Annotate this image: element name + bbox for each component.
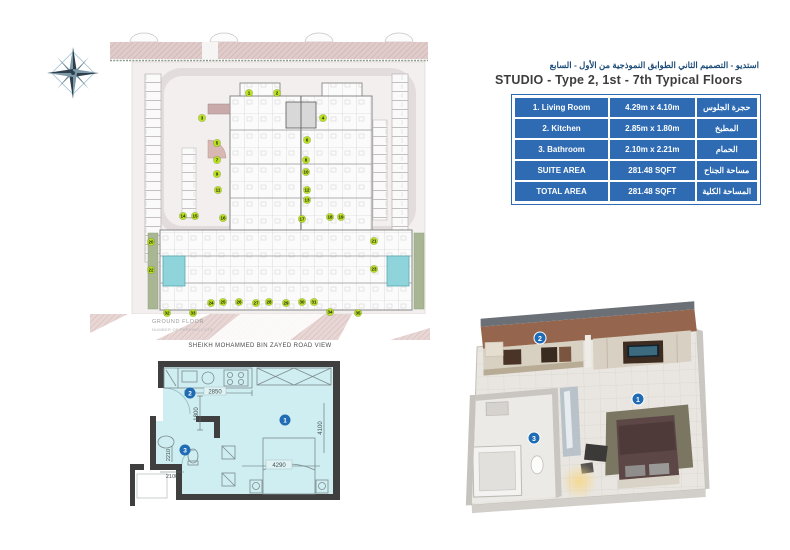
dim-living-depth: 4100 (318, 421, 324, 435)
unit-number-marker: 15 (192, 213, 199, 220)
unit-number-marker: 32 (164, 310, 171, 317)
marker-living: 1 (283, 418, 287, 425)
unit-3d-render: 1 2 3 (458, 295, 722, 517)
top-road (110, 42, 428, 59)
table-row: 1. Living Room 4.29m x 4.10m حجرة الجلوس (515, 98, 757, 117)
unit-number-marker: 3 (199, 115, 206, 122)
marker-living-3d: 1 (636, 397, 640, 404)
marker-kitchen-3d: 2 (538, 336, 542, 343)
unit-number-marker: 8 (303, 157, 310, 164)
table-row: SUITE AREA 281.48 SQFT مساحة الجناح (515, 161, 757, 180)
unit-number-marker: 13 (304, 197, 311, 204)
render-body (462, 301, 709, 514)
spec-table-wrapper: 1. Living Room 4.29m x 4.10m حجرة الجلوس… (511, 94, 761, 205)
room-size-cell: 2.10m x 2.21m (610, 140, 694, 159)
street-canopies (130, 33, 413, 42)
spec-table: 1. Living Room 4.29m x 4.10m حجرة الجلوس… (513, 96, 759, 203)
toilet-3d (531, 456, 543, 474)
unit-number-marker: 7 (214, 157, 221, 164)
unit-number-marker: 2 (274, 90, 281, 97)
bed-3d (616, 415, 679, 489)
unit-number-marker: 26 (236, 299, 243, 306)
room-size-cell: 4.29m x 4.10m (610, 98, 694, 117)
room-arabic-cell: المطبخ (697, 119, 757, 138)
dim-kitchen-width: 2850 (208, 390, 222, 396)
dim-living-width: 4290 (272, 463, 286, 469)
unit-number-marker: 9 (214, 171, 221, 178)
brochure-page: GROUND FLOOR NUMBER OF PARKING LOTS SHEI… (0, 0, 790, 550)
landscape-right (414, 233, 424, 309)
total-area-cell: TOTAL AREA (515, 182, 608, 201)
parking-left-inner (182, 148, 196, 218)
unit-number-marker: 34 (327, 309, 334, 316)
unit-number-marker: 23 (371, 266, 378, 273)
unit-number-marker: 18 (327, 214, 334, 221)
unit-number-marker: 35 (355, 310, 362, 317)
suite-area-value: 281.48 SQFT (610, 161, 694, 180)
unit-number-marker: 28 (266, 299, 273, 306)
unit-number-marker: 19 (338, 214, 345, 221)
table-row: TOTAL AREA 281.48 SQFT المساحة الكلية (515, 182, 757, 201)
building-upper-wing (208, 83, 372, 230)
unit-number-marker: 27 (253, 300, 260, 307)
total-area-arabic: المساحة الكلية (697, 182, 757, 201)
entrance-canopy (208, 104, 230, 114)
unit-number-marker: 5 (214, 140, 221, 147)
panel-title-english: STUDIO - Type 2, 1st - 7th Typical Floor… (495, 73, 761, 87)
dim-kitchen-depth: 1800 (194, 407, 200, 421)
room-name-cell: 3. Bathroom (515, 140, 608, 159)
unit-number-marker: 17 (299, 216, 306, 223)
unit-number-marker: 22 (148, 267, 155, 274)
unit-number-marker: 31 (311, 299, 318, 306)
suite-area-arabic: مساحة الجناح (697, 161, 757, 180)
room-arabic-cell: الحمام (697, 140, 757, 159)
unit-number-marker: 12 (304, 187, 311, 194)
marker-bath-3d: 3 (532, 436, 536, 443)
bottom-road (90, 314, 430, 340)
unit-number-marker: 25 (220, 299, 227, 306)
marker-bath: 3 (183, 448, 187, 455)
unit-number-marker: 30 (299, 299, 306, 306)
bathroom-3d (470, 388, 562, 503)
unit-number-marker: 24 (208, 300, 215, 307)
unit-number-marker: 10 (303, 169, 310, 176)
unit-info-panel: استديو - التصميم الثاني الطوابق النموذجي… (495, 60, 761, 205)
unit-number-marker: 6 (304, 137, 311, 144)
unit-number-marker: 29 (283, 300, 290, 307)
table-row: 2. Kitchen 2.85m x 1.80m المطبخ (515, 119, 757, 138)
unit-number-marker: 20 (148, 239, 155, 246)
divider-wall (585, 335, 592, 368)
room-arabic-cell: حجرة الجلوس (697, 98, 757, 117)
road-view-label: SHEIKH MOHAMMED BIN ZAYED ROAD VIEW (90, 343, 430, 349)
unit-number-marker: 11 (215, 187, 222, 194)
pool-right (387, 256, 409, 286)
unit-number-marker: 4 (320, 115, 327, 122)
unit-number-marker: 1 (246, 90, 253, 97)
room-name-cell: 2. Kitchen (515, 119, 608, 138)
suite-area-cell: SUITE AREA (515, 161, 608, 180)
dim-bath-width: 2100 (166, 474, 178, 480)
vanity (486, 402, 508, 416)
dim-bath-depth: 2210 (166, 449, 172, 461)
room-size-cell: 2.85m x 1.80m (610, 119, 694, 138)
entry-closet-3d (560, 386, 581, 457)
panel-title-arabic: استديو - التصميم الثاني الطوابق النموذجي… (495, 60, 761, 71)
unit-number-marker: 16 (220, 215, 227, 222)
pool-left (163, 256, 185, 286)
unit-number-marker: 14 (180, 213, 187, 220)
total-area-value: 281.48 SQFT (610, 182, 694, 201)
parking-right-inner (373, 120, 387, 220)
ground-floor-label: GROUND FLOOR (152, 319, 204, 325)
site-plan-drawing (90, 28, 430, 353)
unit-number-marker: 21 (371, 238, 378, 245)
neighbor-fragment (137, 474, 167, 498)
ground-floor-sublabel: NUMBER OF PARKING LOTS (152, 327, 213, 332)
marker-kitchen: 2 (188, 391, 192, 398)
top-road-entry (202, 42, 218, 59)
unit-2d-floor-plan: 2850 1800 4100 4290 2210 2100 1 2 3 (130, 358, 370, 512)
unit-number-marker: 33 (190, 310, 197, 317)
table-row: 3. Bathroom 2.10m x 2.21m الحمام (515, 140, 757, 159)
room-name-cell: 1. Living Room (515, 98, 608, 117)
site-plan: GROUND FLOOR NUMBER OF PARKING LOTS SHEI… (90, 28, 430, 353)
